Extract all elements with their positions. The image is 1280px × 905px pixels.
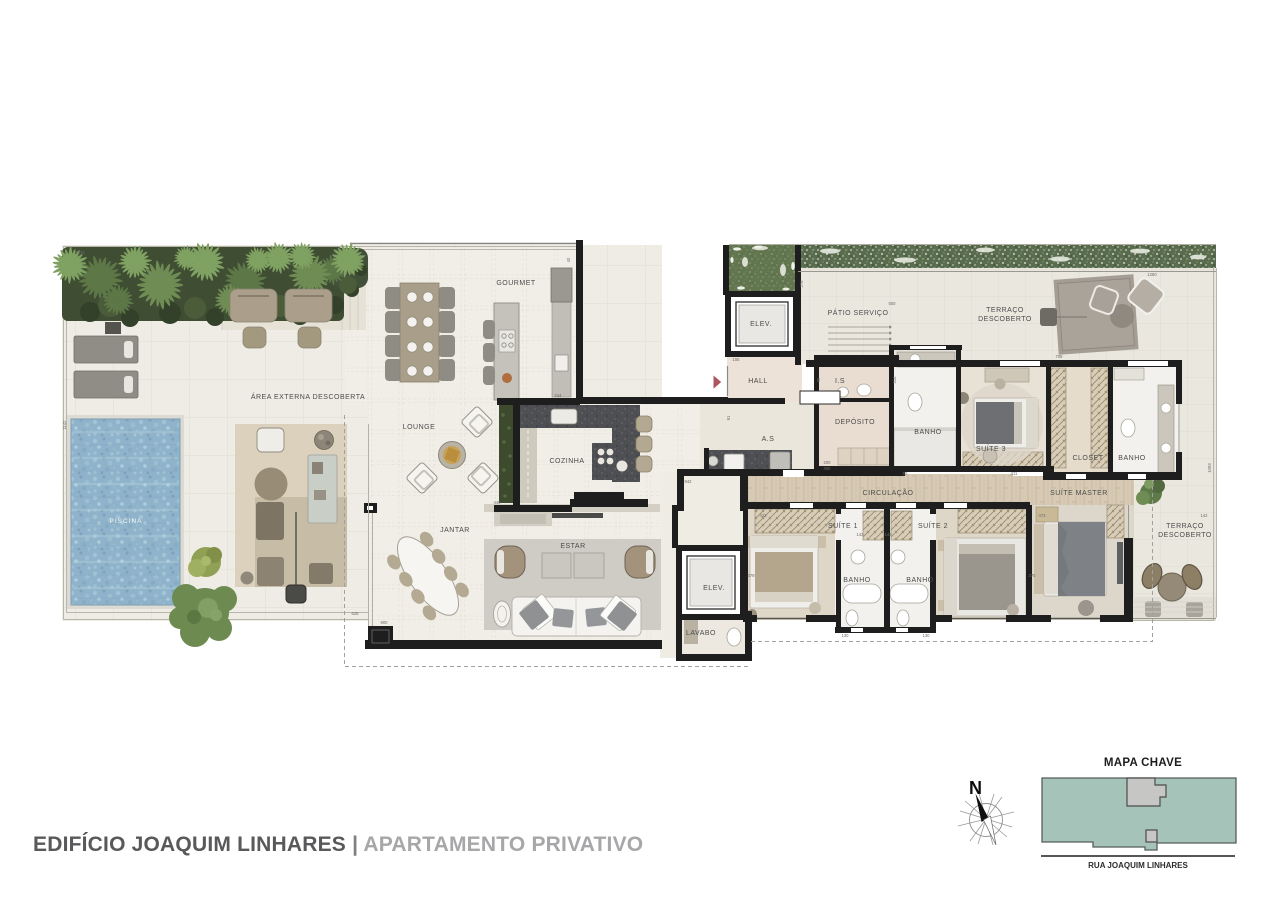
svg-text:130: 130 xyxy=(842,633,850,638)
svg-text:423: 423 xyxy=(760,513,768,518)
svg-text:130: 130 xyxy=(923,633,931,638)
svg-text:TERRAÇO: TERRAÇO xyxy=(986,307,1024,314)
svg-text:942: 942 xyxy=(685,479,693,484)
svg-text:RUA JOAQUIM LINHARES: RUA JOAQUIM LINHARES xyxy=(1088,861,1188,870)
svg-text:142: 142 xyxy=(1201,513,1209,518)
svg-text:PISCINA: PISCINA xyxy=(109,518,142,525)
svg-text:CIRCULAÇÃO: CIRCULAÇÃO xyxy=(863,488,914,497)
svg-text:300: 300 xyxy=(824,466,832,471)
svg-text:1280: 1280 xyxy=(1147,272,1157,277)
svg-text:440: 440 xyxy=(494,500,502,505)
svg-text:SUÍTE MASTER: SUÍTE MASTER xyxy=(1050,488,1108,497)
svg-text:LOUNGE: LOUNGE xyxy=(403,424,436,431)
svg-text:BANHO: BANHO xyxy=(914,429,941,436)
svg-text:143: 143 xyxy=(885,532,893,537)
svg-text:276: 276 xyxy=(799,280,804,288)
svg-text:1142: 1142 xyxy=(62,420,67,430)
svg-text:40: 40 xyxy=(566,257,571,262)
svg-text:SUÍTE 1: SUÍTE 1 xyxy=(828,521,858,530)
svg-text:I.S: I.S xyxy=(835,378,845,385)
svg-text:A.S: A.S xyxy=(762,436,775,443)
svg-text:155: 155 xyxy=(733,357,741,362)
svg-text:379: 379 xyxy=(748,573,756,578)
svg-text:BANHO: BANHO xyxy=(843,577,870,584)
svg-text:BANHO: BANHO xyxy=(1118,455,1145,462)
svg-text:625: 625 xyxy=(352,611,360,616)
svg-text:ELEV.: ELEV. xyxy=(750,321,772,328)
svg-text:DESCOBERTO: DESCOBERTO xyxy=(978,316,1032,323)
svg-text:500: 500 xyxy=(889,301,897,306)
svg-text:95: 95 xyxy=(816,377,821,382)
svg-text:MAPA CHAVE: MAPA CHAVE xyxy=(1104,757,1182,769)
svg-text:143: 143 xyxy=(857,532,865,537)
svg-text:375: 375 xyxy=(1029,573,1037,578)
svg-text:SUÍTE 3: SUÍTE 3 xyxy=(976,444,1006,453)
svg-text:PÁTIO SERVIÇO: PÁTIO SERVIÇO xyxy=(828,308,889,317)
svg-text:900: 900 xyxy=(381,620,389,625)
svg-text:411: 411 xyxy=(1011,471,1018,476)
svg-text:ELEV.: ELEV. xyxy=(703,585,725,592)
svg-text:708: 708 xyxy=(1056,354,1064,359)
svg-text:GOURMET: GOURMET xyxy=(496,280,536,287)
svg-text:HALL: HALL xyxy=(748,378,768,385)
svg-text:ÁREA EXTERNA DESCOBERTA: ÁREA EXTERNA DESCOBERTA xyxy=(251,392,365,401)
svg-text:LAVABO: LAVABO xyxy=(686,630,716,637)
svg-text:200: 200 xyxy=(824,460,832,465)
svg-text:90: 90 xyxy=(903,471,908,476)
svg-text:SUÍTE 2: SUÍTE 2 xyxy=(918,521,948,530)
svg-text:TERRAÇO: TERRAÇO xyxy=(1166,523,1204,530)
svg-text:314: 314 xyxy=(892,376,897,384)
svg-text:COZINHA: COZINHA xyxy=(550,458,585,465)
svg-text:244: 244 xyxy=(555,393,563,398)
svg-text:BANHO: BANHO xyxy=(906,577,933,584)
svg-text:91: 91 xyxy=(726,415,731,420)
svg-text:DESCOBERTO: DESCOBERTO xyxy=(1158,532,1212,539)
svg-text:473: 473 xyxy=(1039,513,1047,518)
svg-text:EDIFÍCIO JOAQUIM LINHARES | AP: EDIFÍCIO JOAQUIM LINHARES | APARTAMENTO … xyxy=(33,833,643,856)
svg-text:ESTAR: ESTAR xyxy=(560,543,585,550)
svg-text:N: N xyxy=(969,778,982,798)
svg-text:JANTAR: JANTAR xyxy=(440,527,470,534)
svg-text:CLOSET: CLOSET xyxy=(1072,455,1103,462)
svg-text:1536: 1536 xyxy=(75,250,85,255)
svg-text:DEPÓSITO: DEPÓSITO xyxy=(835,417,875,426)
svg-text:1093: 1093 xyxy=(1207,463,1212,473)
